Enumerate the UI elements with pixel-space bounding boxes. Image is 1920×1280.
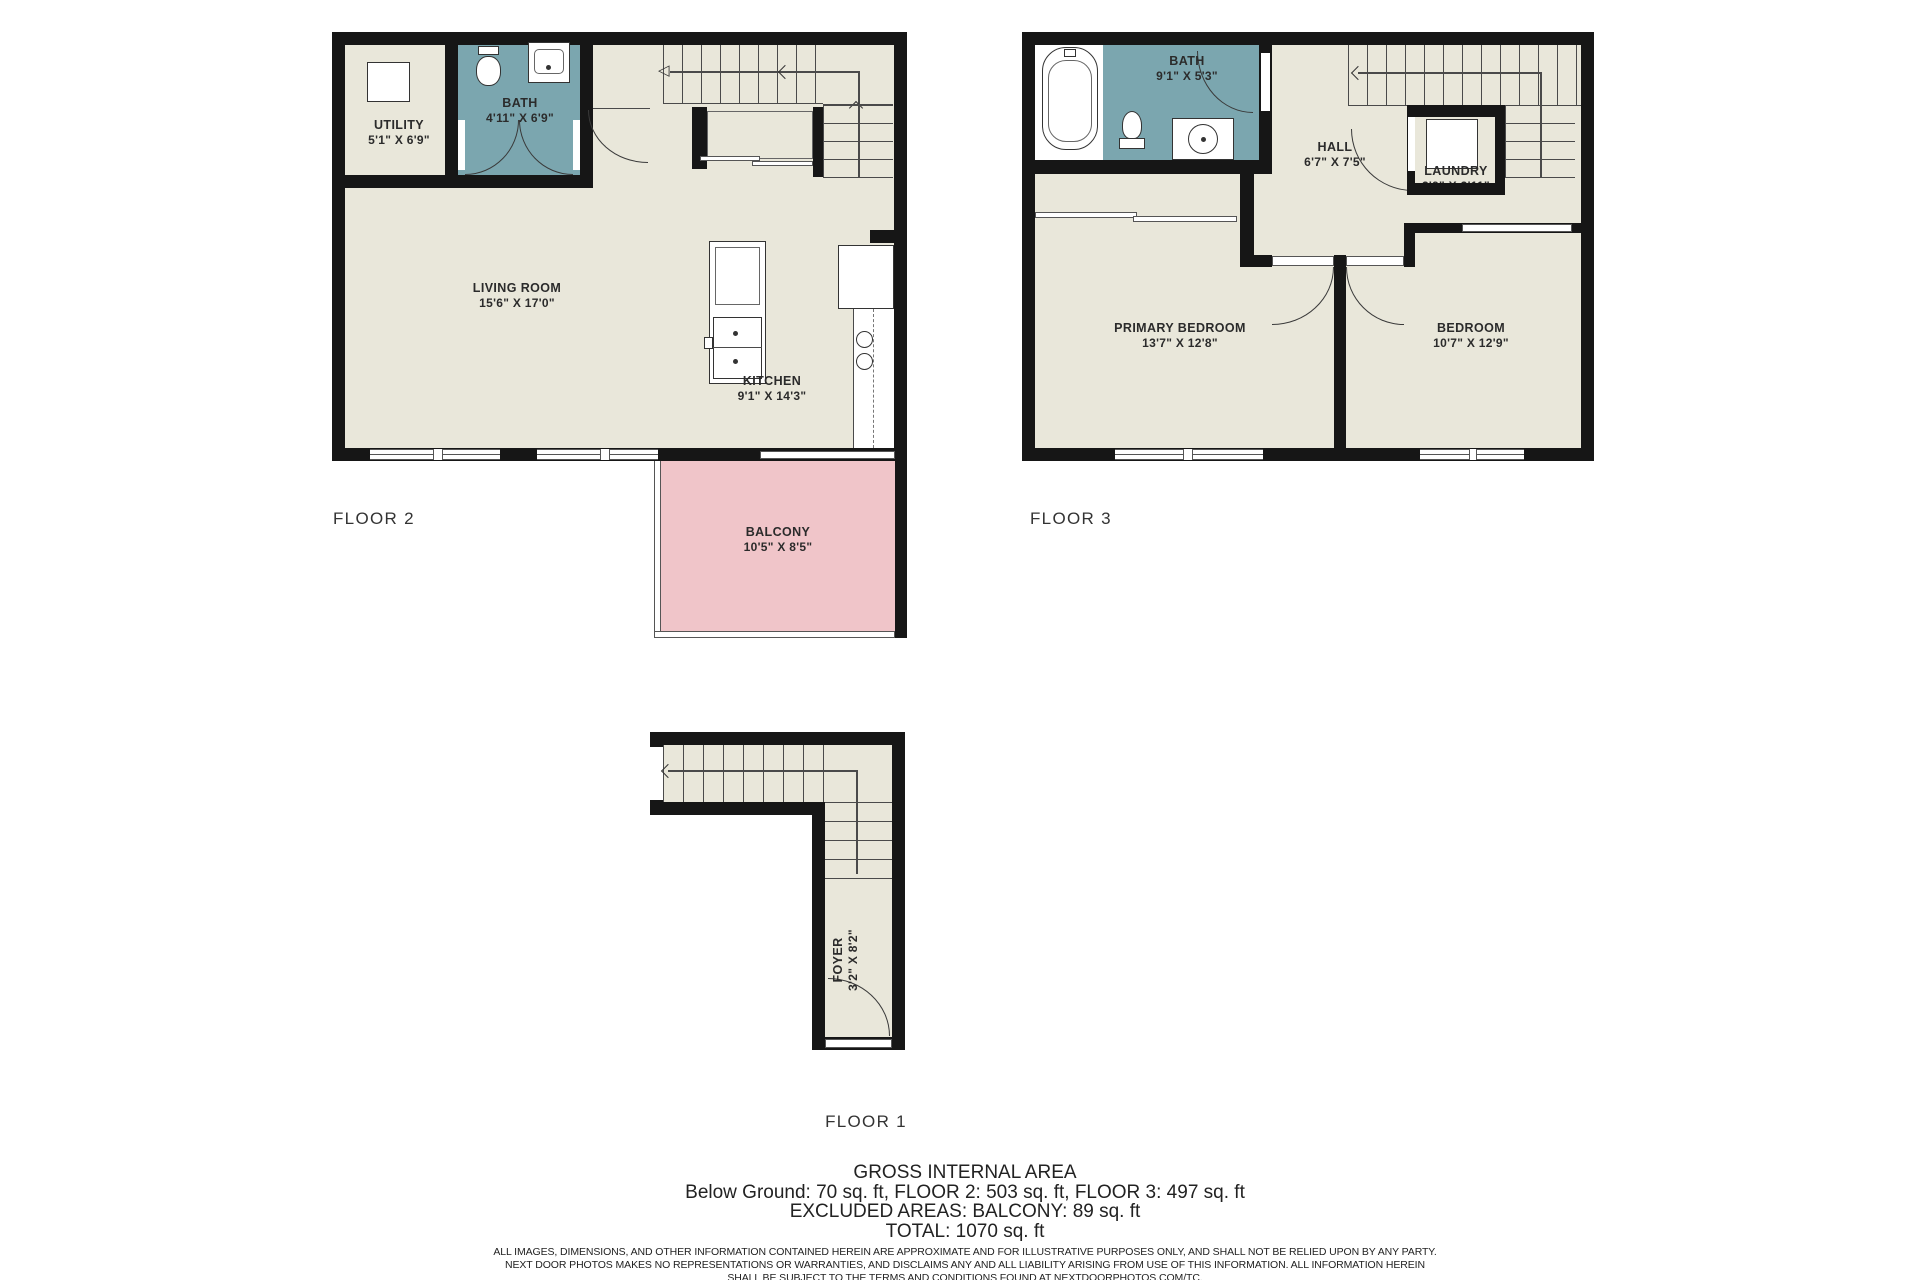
- stove-burner-icon: [856, 331, 873, 348]
- door-jamb: [458, 120, 465, 170]
- door-threshold: [1346, 256, 1404, 266]
- closet: [707, 111, 813, 159]
- stair-arrow-line: [670, 71, 860, 73]
- staircase-treads: [1348, 45, 1581, 105]
- stair-arrow-icon: ◁: [658, 63, 670, 78]
- sliding-door: [1133, 216, 1237, 222]
- toilet-icon: [478, 46, 499, 55]
- stair-arrow-line: [856, 770, 858, 874]
- kitchen-counter: [854, 309, 894, 448]
- window: [1477, 449, 1524, 460]
- wall: [813, 107, 823, 177]
- sink-drain: [546, 65, 551, 70]
- wall: [1240, 174, 1254, 267]
- fridge-icon: [838, 245, 894, 309]
- disclaimer-line: NEXT DOOR PHOTOS MAKES NO REPRESENTATION…: [460, 1259, 1470, 1272]
- counter-dashed-line: [873, 309, 874, 448]
- wall: [445, 175, 593, 188]
- door-jamb: [573, 120, 580, 170]
- sliding-door: [1462, 224, 1572, 232]
- island-line: [713, 347, 762, 348]
- window: [443, 449, 500, 460]
- excluded-areas-line: EXCLUDED AREAS: BALCONY: 89 sq. ft: [460, 1202, 1470, 1222]
- sink-basin: [534, 49, 564, 74]
- water-heater-icon: [367, 62, 410, 102]
- wall: [1334, 255, 1346, 448]
- staircase-treads: [663, 45, 823, 103]
- room-label-bath: BATH 9'1" X 5'3": [1156, 54, 1218, 84]
- stair-line: [663, 103, 823, 104]
- floor2-label: FLOOR 2: [333, 509, 415, 529]
- stove-burner-icon: [856, 353, 873, 370]
- window: [1193, 449, 1263, 460]
- room-label-foyer: FOYER 3'2" X 8'2": [831, 929, 861, 991]
- staircase-treads: [1505, 105, 1575, 177]
- wall: [1407, 183, 1505, 195]
- sliding-door: [752, 161, 813, 166]
- staircase-treads: [663, 745, 825, 802]
- window: [370, 449, 433, 460]
- room-label-primary-bedroom: PRIMARY BEDROOM 13'7" X 12'8": [1114, 321, 1246, 351]
- window-mullion: [433, 449, 443, 460]
- wall: [870, 230, 894, 243]
- wall: [895, 461, 907, 638]
- staircase-treads: [823, 105, 893, 177]
- toilet-icon: [1119, 138, 1145, 149]
- faucet-dot: [733, 331, 738, 336]
- window-mullion: [1469, 449, 1477, 460]
- sliding-glass-door: [760, 451, 895, 459]
- door-jamb: [1261, 53, 1270, 111]
- room-label-utility: UTILITY 5'1" X 6'9": [368, 118, 430, 148]
- stair-arrow-line: [668, 770, 858, 772]
- toilet-icon: [476, 56, 501, 86]
- wall-line: [593, 108, 650, 109]
- room-label-balcony: BALCONY 10'5" X 8'5": [744, 525, 813, 555]
- area-summary: GROSS INTERNAL AREA Below Ground: 70 sq.…: [460, 1163, 1470, 1280]
- stair-line: [1348, 45, 1349, 105]
- bathtub-faucet: [1064, 49, 1076, 57]
- staircase-treads: [825, 802, 892, 878]
- stair-line: [1505, 105, 1506, 177]
- window: [537, 449, 600, 460]
- sliding-door: [1035, 212, 1137, 218]
- floor3-plan: LAUNDRY 3'9" X 3'11" BATH 9'1" X 5'3" HA…: [1022, 32, 1594, 461]
- stair-line: [823, 105, 824, 177]
- room-label-hall: HALL 6'7" X 7'5": [1304, 140, 1366, 170]
- wall: [1022, 160, 1272, 174]
- stair-line: [823, 177, 893, 178]
- island-counter: [715, 247, 760, 305]
- total-area-line: TOTAL: 1070 sq. ft: [460, 1222, 1470, 1242]
- sink-drain: [1201, 137, 1206, 142]
- window-mullion: [600, 449, 610, 460]
- room-label-bath: BATH 4'11" X 6'9": [486, 96, 554, 126]
- stair-opening: [650, 747, 663, 800]
- window: [1420, 449, 1469, 460]
- floor3-label: FLOOR 3: [1030, 509, 1112, 529]
- room-label-living: LIVING ROOM 15'6" X 17'0": [473, 281, 561, 311]
- floor-plan-page: ◁: [0, 0, 1920, 1280]
- washer-icon: [1426, 119, 1478, 169]
- stair-line: [825, 878, 892, 879]
- room-label-kitchen: KITCHEN 9'1" X 14'3": [738, 374, 807, 404]
- gross-internal-area-title: GROSS INTERNAL AREA: [460, 1163, 1470, 1183]
- area-by-floor-line: Below Ground: 70 sq. ft, FLOOR 2: 503 sq…: [460, 1183, 1470, 1203]
- floor1-label: FLOOR 1: [806, 1112, 926, 1132]
- wall: [445, 45, 458, 188]
- wall: [1407, 105, 1505, 117]
- island-sink-icon: [713, 317, 762, 379]
- balcony-railing: [654, 461, 661, 638]
- door-threshold: [1272, 256, 1334, 266]
- window: [1115, 449, 1183, 460]
- faucet-dot: [733, 359, 738, 364]
- floor2-interior: [345, 45, 894, 448]
- wall: [1404, 223, 1415, 267]
- toilet-icon: [1122, 111, 1142, 139]
- window: [610, 449, 658, 460]
- wall: [1240, 255, 1272, 267]
- sliding-door: [700, 156, 760, 161]
- disclaimer-line: ALL IMAGES, DIMENSIONS, AND OTHER INFORM…: [460, 1246, 1470, 1259]
- floor1-plan: FOYER 3'2" X 8'2": [650, 732, 905, 1050]
- floor2-plan: ◁: [332, 32, 907, 461]
- balcony-railing: [654, 631, 895, 638]
- wall: [332, 175, 458, 188]
- wall: [1495, 105, 1505, 183]
- counter-edge: [853, 309, 854, 448]
- window-mullion: [1183, 449, 1193, 460]
- stair-line: [1505, 177, 1575, 178]
- bathtub-inner: [1048, 60, 1092, 142]
- faucet-icon: [704, 337, 713, 349]
- room-label-bedroom: BEDROOM 10'7" X 12'9": [1433, 321, 1509, 351]
- entry-door-threshold: [825, 1039, 892, 1048]
- disclaimer-line: SHALL BE SUBJECT TO THE TERMS AND CONDIT…: [460, 1272, 1470, 1280]
- stair-arrow-line: [1358, 72, 1542, 74]
